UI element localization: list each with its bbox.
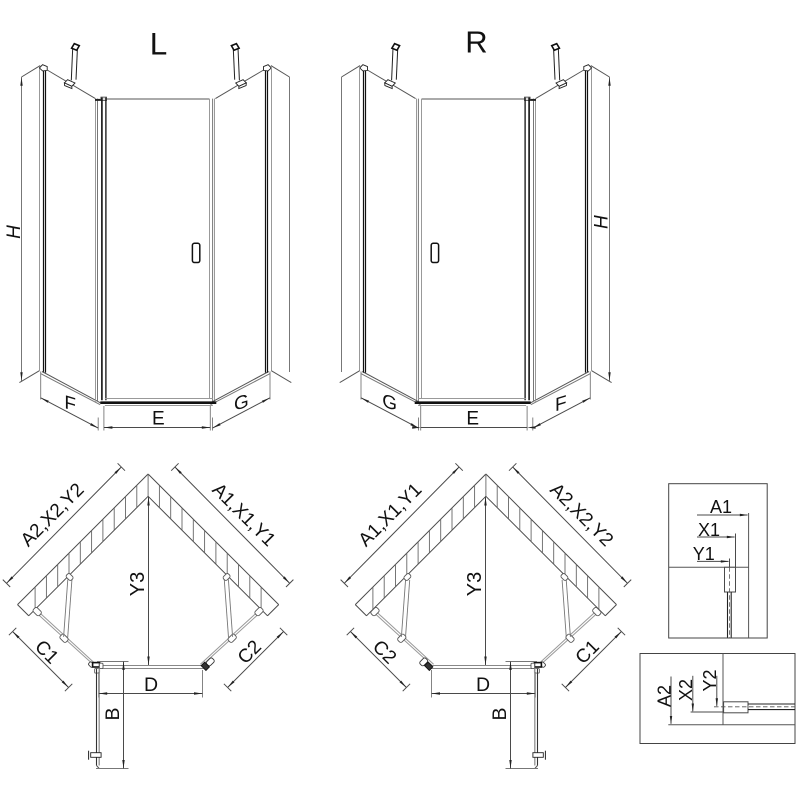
svg-text:F: F xyxy=(555,391,567,416)
svg-text:L: L xyxy=(150,26,168,62)
svg-text:R: R xyxy=(465,24,487,59)
svg-text:X2: X2 xyxy=(676,679,696,701)
svg-text:Y2: Y2 xyxy=(700,669,720,691)
svg-text:G: G xyxy=(382,390,397,416)
svg-text:A2: A2 xyxy=(654,685,674,707)
svg-text:B: B xyxy=(102,707,124,720)
svg-text:D: D xyxy=(144,674,158,696)
svg-text:A1: A1 xyxy=(710,497,732,517)
svg-text:G: G xyxy=(234,390,249,416)
svg-text:Y3: Y3 xyxy=(127,572,149,596)
svg-text:B: B xyxy=(489,707,511,720)
svg-text:H: H xyxy=(589,215,610,229)
svg-text:H: H xyxy=(1,224,22,238)
svg-text:E: E xyxy=(152,409,165,430)
svg-text:F: F xyxy=(64,391,76,416)
svg-text:Y3: Y3 xyxy=(464,572,486,596)
svg-text:D: D xyxy=(476,674,490,696)
svg-text:X1: X1 xyxy=(698,520,720,540)
svg-text:E: E xyxy=(466,409,479,430)
svg-text:Y1: Y1 xyxy=(693,544,715,564)
